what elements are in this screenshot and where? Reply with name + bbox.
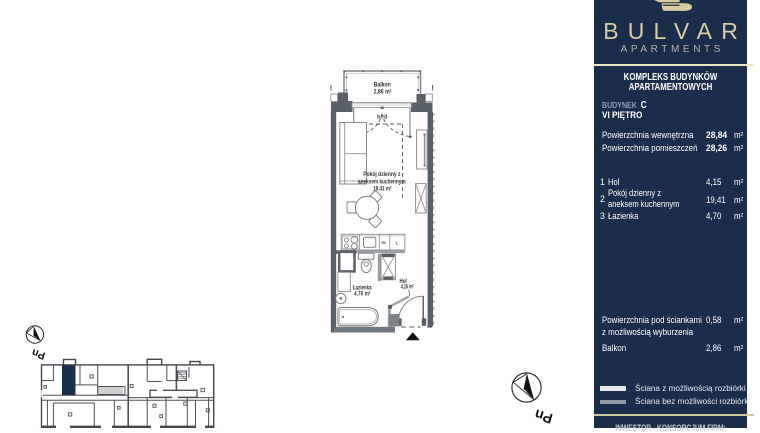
svg-text:aneksem kuchennym: aneksem kuchennym <box>358 179 406 186</box>
svg-text:2,86 m²: 2,86 m² <box>374 89 392 96</box>
svg-text:ZM: ZM <box>381 240 386 245</box>
svg-text:Pn: Pn <box>533 407 555 428</box>
svg-text:4,70 m²: 4,70 m² <box>354 290 371 297</box>
svg-text:Pn: Pn <box>30 346 46 361</box>
svg-text:4,16 m²: 4,16 m² <box>401 283 414 290</box>
svg-text:h=0: h=0 <box>377 115 388 121</box>
svg-text:Pokój dzienny z: Pokój dzienny z <box>363 171 401 178</box>
svg-text:Balkon: Balkon <box>374 81 391 88</box>
svg-text:L: L <box>396 240 399 245</box>
svg-text:19,41 m²: 19,41 m² <box>373 186 392 193</box>
